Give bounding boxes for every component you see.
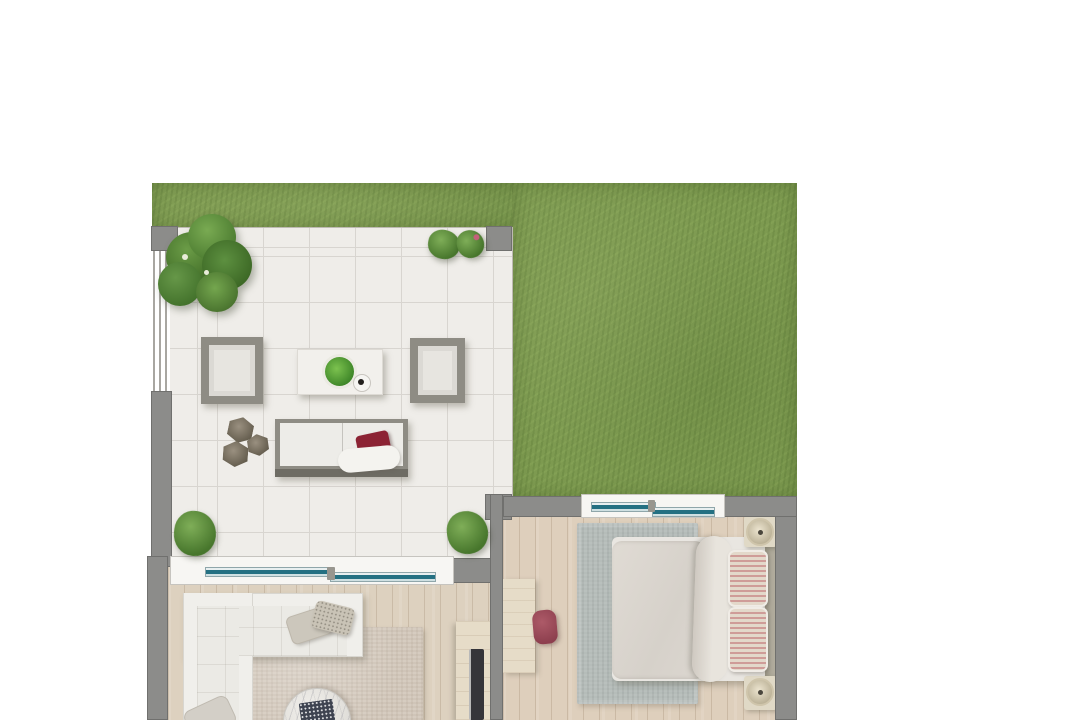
outdoor-coffee-table — [297, 349, 383, 395]
potted-plant — [325, 357, 354, 386]
cup-center — [358, 379, 364, 385]
lamp-finial — [758, 690, 763, 695]
door-handle — [327, 567, 335, 580]
bed-duvet — [612, 541, 705, 679]
flower-fleck — [204, 270, 209, 275]
wall-bedroom-west — [490, 494, 503, 720]
bedside-lamp — [746, 678, 774, 706]
window-glass-panel — [591, 502, 656, 512]
striped-pillow — [728, 550, 768, 607]
striped-pillow — [728, 607, 768, 672]
television — [469, 649, 484, 720]
armchair-cushion — [418, 346, 457, 395]
lamp-finial — [758, 530, 763, 535]
wall-bedroom-north-right — [721, 496, 797, 517]
flower-fleck — [182, 254, 188, 260]
wall-living-west — [147, 556, 168, 720]
book-on-table — [299, 699, 336, 720]
armchair-cushion — [209, 345, 255, 396]
outdoor-armchair-left — [201, 337, 263, 404]
garden-lawn-east — [512, 183, 797, 497]
foliage — [196, 272, 238, 312]
pink-bloom — [473, 234, 480, 241]
bedside-lamp — [746, 518, 774, 546]
cup — [353, 374, 371, 392]
sliding-door-glass-panel — [330, 572, 436, 582]
wall-bedroom-north-left — [503, 496, 583, 517]
wall-terrace-west — [151, 391, 172, 567]
foliage — [158, 262, 202, 306]
bedroom-desk — [503, 579, 535, 673]
nightstand — [744, 676, 777, 710]
corner-tree — [158, 214, 254, 316]
nightstand — [744, 516, 777, 547]
maroon-stool — [532, 609, 559, 645]
pillar-northeast — [486, 226, 512, 251]
window-glass-panel — [652, 507, 715, 517]
window-handle — [648, 500, 655, 512]
sliding-door-glass-panel — [205, 567, 333, 577]
floor-plan-canvas — [0, 0, 1075, 720]
wall-bedroom-east — [775, 516, 797, 720]
bed-duvet-fold — [691, 535, 732, 682]
outdoor-armchair-right — [410, 338, 465, 403]
